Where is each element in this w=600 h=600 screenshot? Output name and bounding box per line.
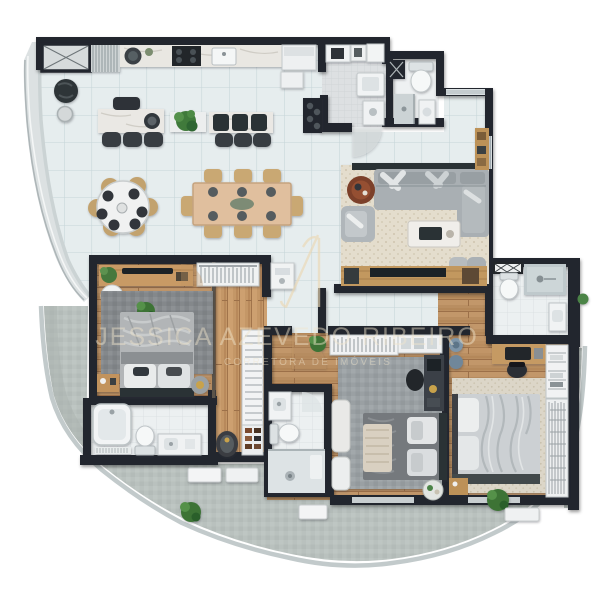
- svg-text:JESSICA AZEVEDO RIBEIRO: JESSICA AZEVEDO RIBEIRO: [95, 323, 479, 351]
- svg-text:CORRETORA DE IMÓVEIS: CORRETORA DE IMÓVEIS: [224, 355, 392, 368]
